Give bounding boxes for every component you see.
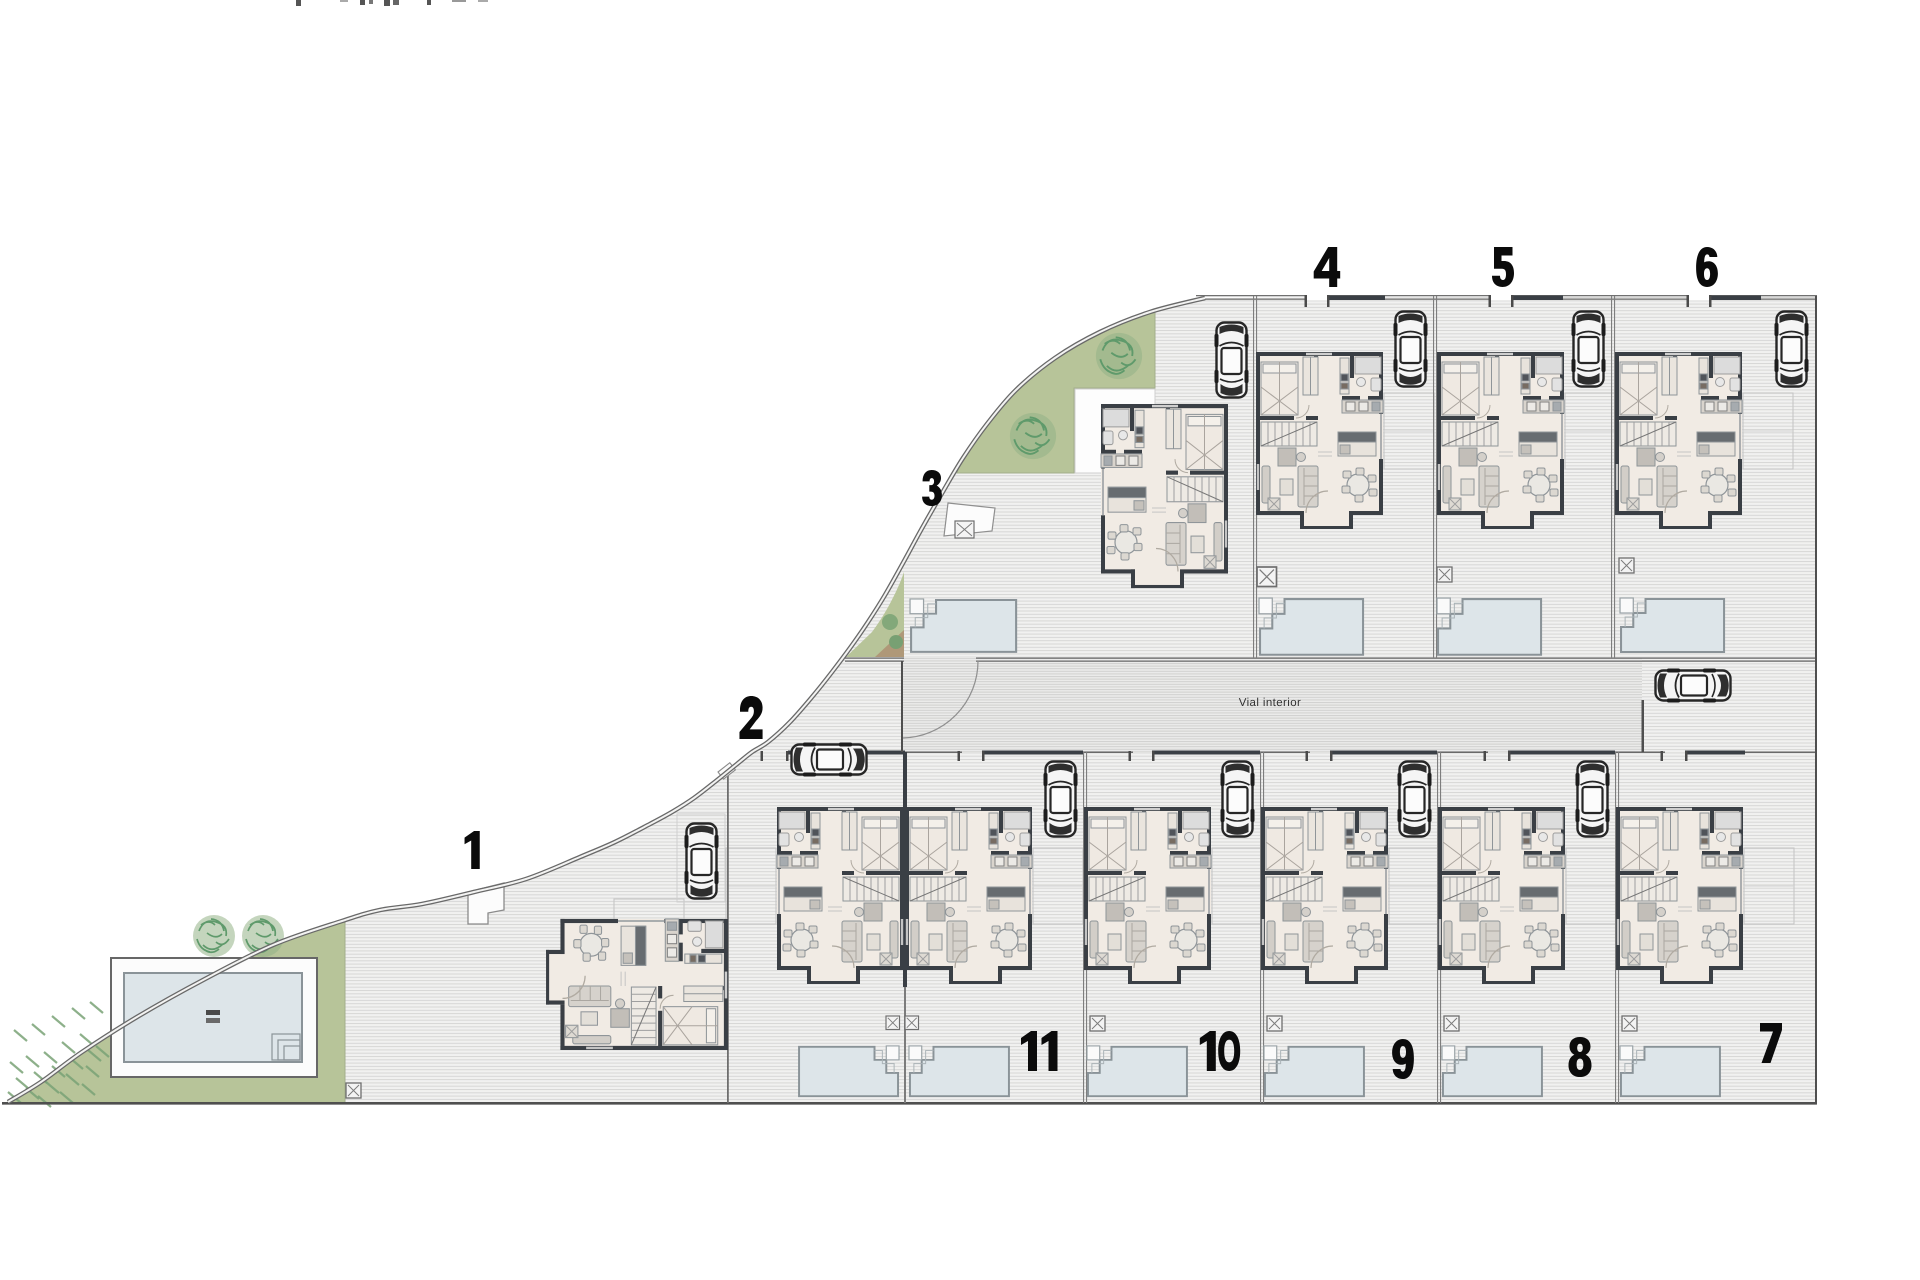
svg-text:Vial interior: Vial interior: [1239, 697, 1302, 709]
